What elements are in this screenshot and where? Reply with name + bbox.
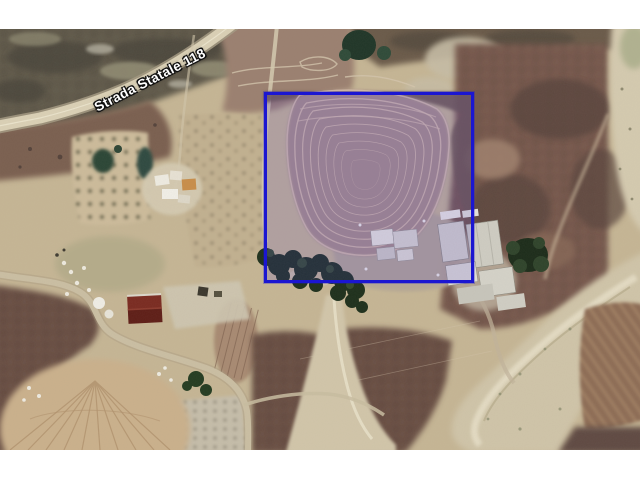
highlight-rectangle: [264, 92, 474, 283]
screenshot-canvas: Strada Statale 118: [0, 0, 640, 480]
satellite-map[interactable]: Strada Statale 118: [0, 29, 640, 450]
